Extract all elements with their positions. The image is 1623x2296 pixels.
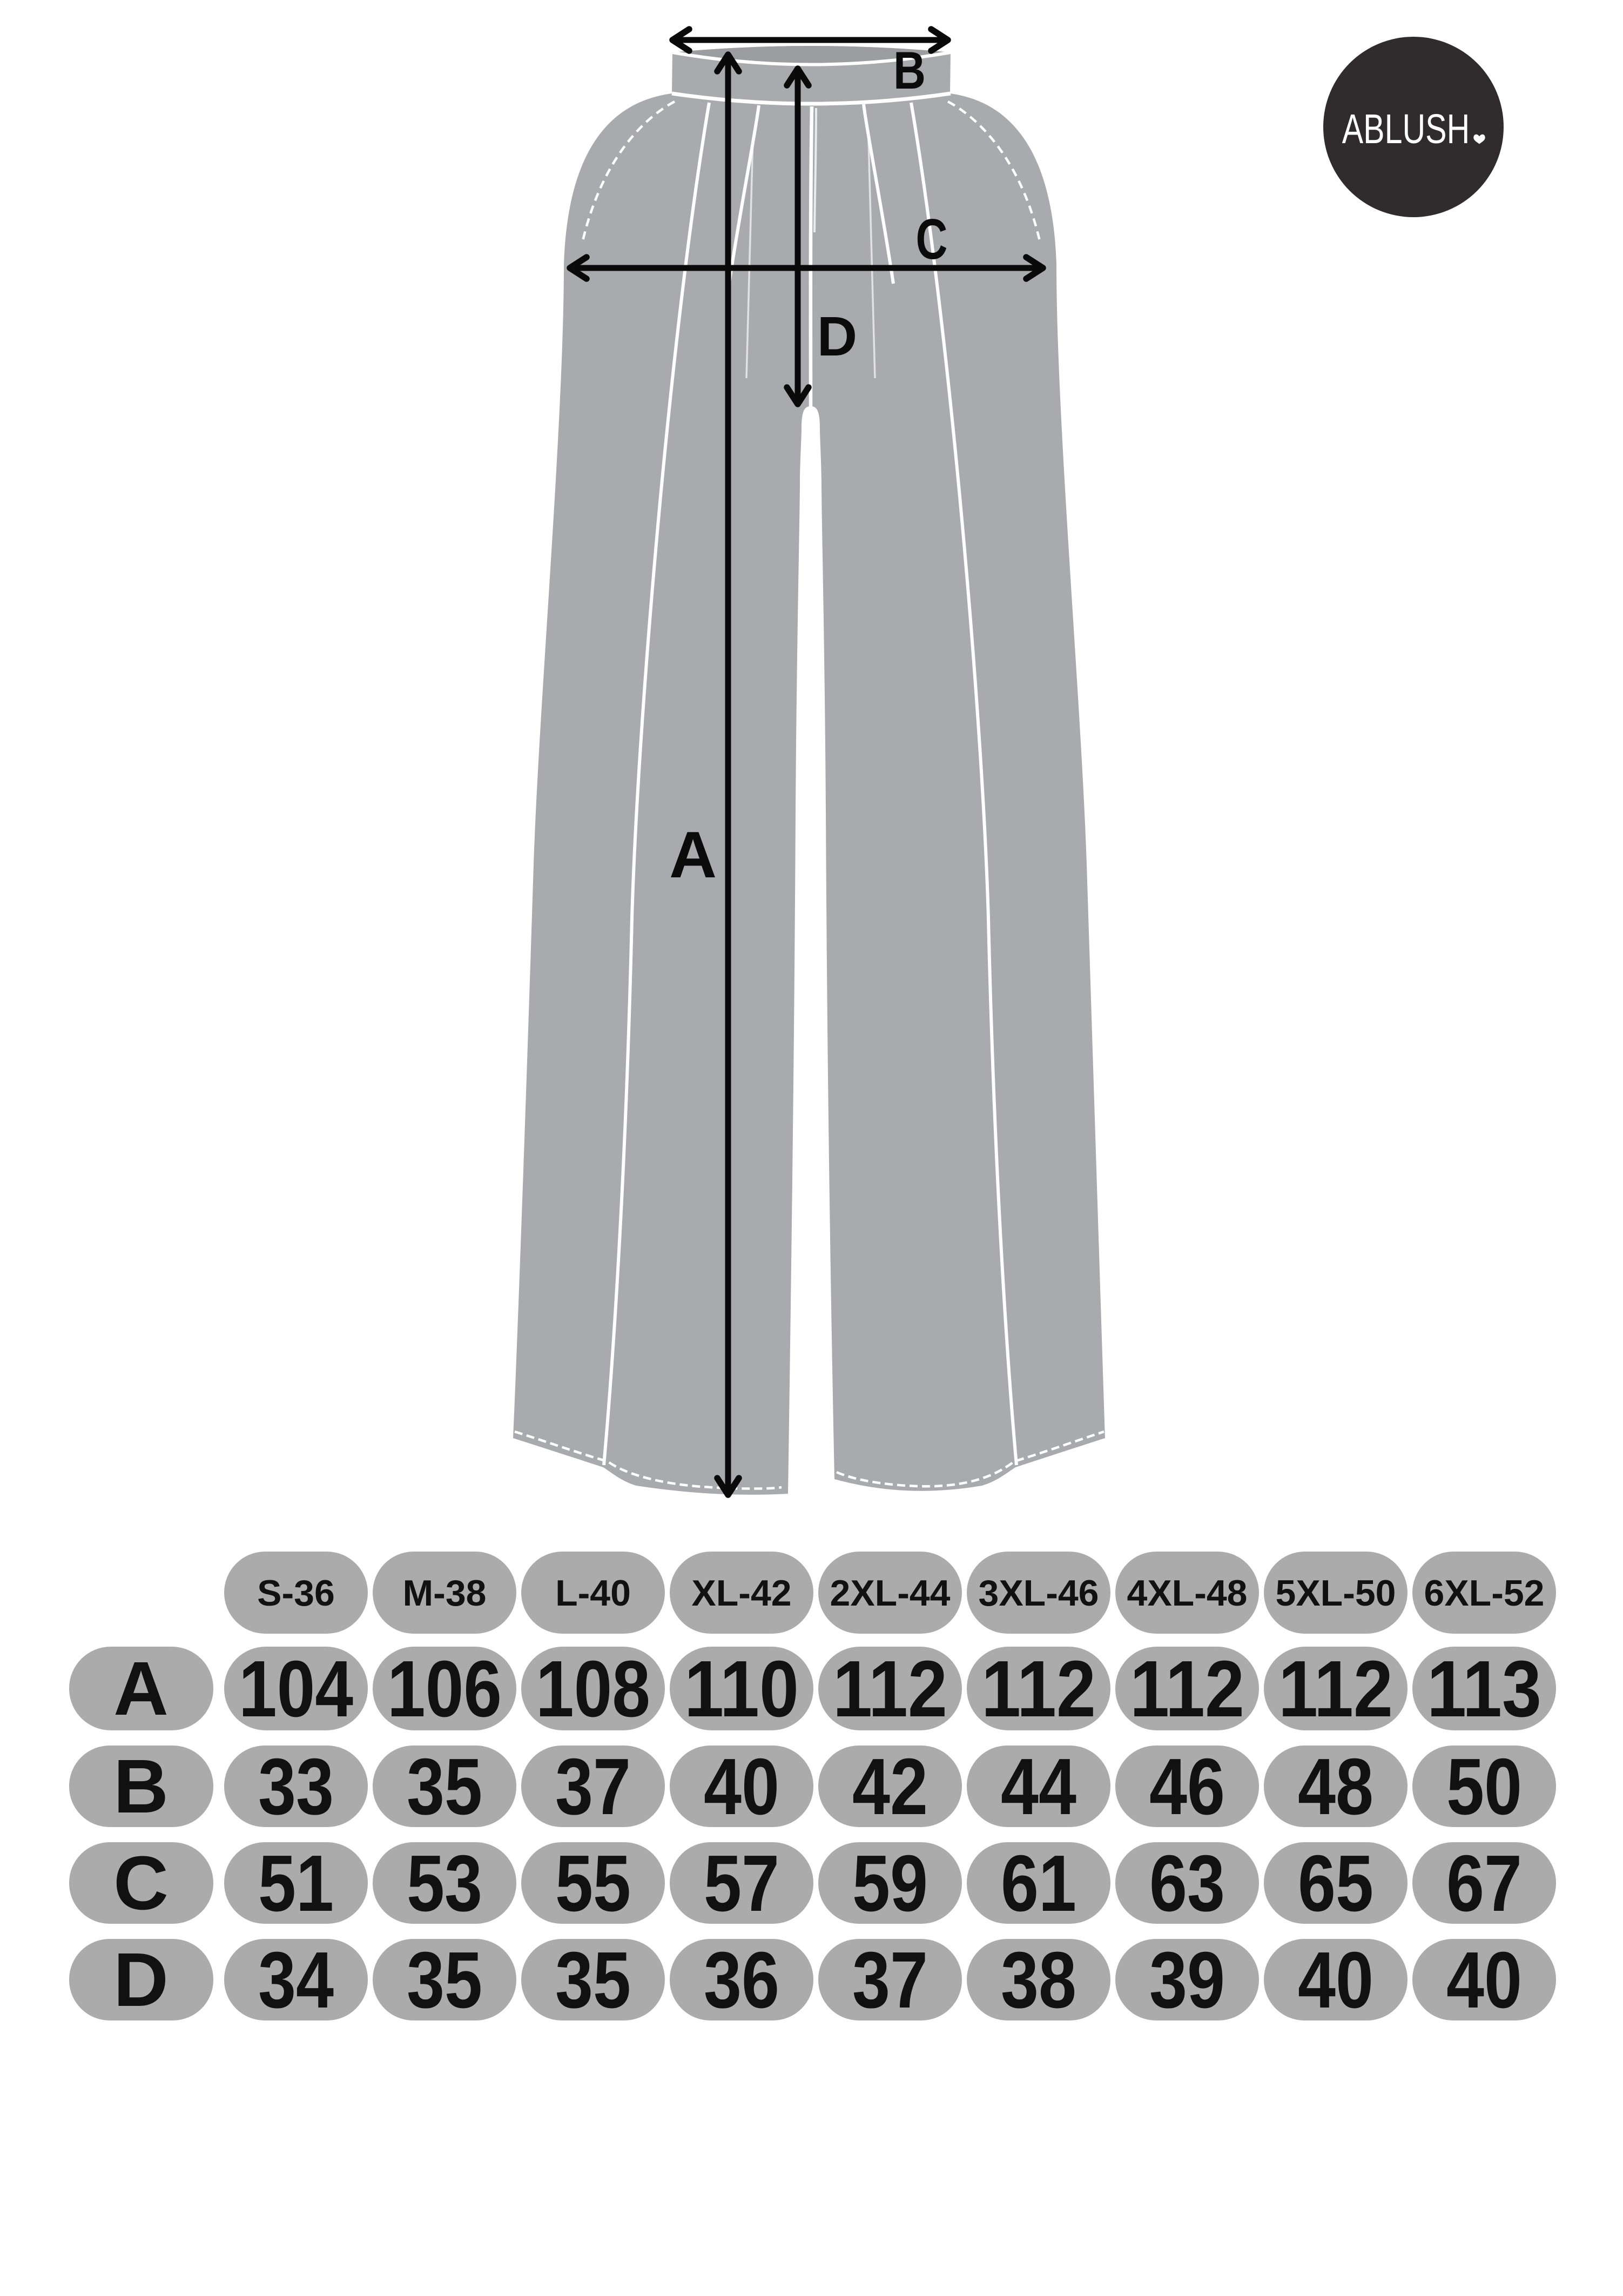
svg-text:35: 35 — [407, 1936, 482, 2025]
svg-text:34: 34 — [258, 1936, 334, 2025]
svg-text:B: B — [893, 41, 926, 100]
svg-text:38: 38 — [1001, 1936, 1076, 2025]
svg-text:L-40: L-40 — [555, 1573, 631, 1614]
svg-text:2XL-44: 2XL-44 — [830, 1573, 951, 1614]
svg-text:63: 63 — [1149, 1839, 1225, 1928]
svg-text:51: 51 — [258, 1839, 334, 1928]
svg-text:ABLUSH: ABLUSH — [1342, 105, 1470, 152]
svg-text:37: 37 — [555, 1742, 631, 1831]
svg-text:61: 61 — [1001, 1839, 1076, 1928]
svg-text:55: 55 — [555, 1839, 631, 1928]
svg-text:40: 40 — [704, 1742, 779, 1831]
svg-text:108: 108 — [536, 1644, 650, 1734]
svg-text:36: 36 — [704, 1936, 779, 2025]
svg-text:48: 48 — [1298, 1742, 1373, 1831]
svg-text:57: 57 — [704, 1839, 779, 1928]
svg-text:35: 35 — [407, 1742, 482, 1831]
svg-text:112: 112 — [981, 1644, 1096, 1734]
svg-text:42: 42 — [852, 1742, 928, 1831]
svg-text:59: 59 — [852, 1839, 928, 1928]
svg-text:104: 104 — [239, 1644, 353, 1734]
svg-text:4XL-48: 4XL-48 — [1127, 1573, 1248, 1614]
svg-text:6XL-52: 6XL-52 — [1424, 1573, 1545, 1614]
svg-text:D: D — [817, 305, 857, 367]
svg-text:3XL-46: 3XL-46 — [979, 1573, 1099, 1614]
svg-text:M-38: M-38 — [403, 1573, 487, 1614]
svg-text:A: A — [669, 818, 717, 891]
svg-text:65: 65 — [1298, 1839, 1373, 1928]
svg-text:C: C — [916, 207, 948, 271]
svg-text:40: 40 — [1298, 1936, 1373, 2025]
svg-text:112: 112 — [1130, 1644, 1244, 1734]
svg-text:113: 113 — [1427, 1644, 1541, 1734]
svg-text:39: 39 — [1149, 1936, 1225, 2025]
svg-text:D: D — [113, 1937, 169, 2022]
svg-text:50: 50 — [1446, 1742, 1522, 1831]
svg-text:40: 40 — [1446, 1936, 1522, 2025]
svg-text:106: 106 — [387, 1644, 502, 1734]
svg-text:33: 33 — [258, 1742, 334, 1831]
svg-text:37: 37 — [852, 1936, 928, 2025]
svg-text:112: 112 — [833, 1644, 947, 1734]
svg-text:B: B — [113, 1743, 169, 1829]
svg-text:67: 67 — [1446, 1839, 1522, 1928]
svg-text:110: 110 — [684, 1644, 799, 1734]
svg-text:46: 46 — [1149, 1742, 1225, 1831]
svg-text:A: A — [113, 1646, 169, 1731]
svg-text:35: 35 — [555, 1936, 631, 2025]
svg-text:C: C — [113, 1840, 169, 1925]
svg-text:53: 53 — [407, 1839, 482, 1928]
svg-text:44: 44 — [1001, 1742, 1076, 1831]
svg-text:112: 112 — [1278, 1644, 1393, 1734]
svg-text:S-36: S-36 — [257, 1573, 335, 1614]
svg-text:XL-42: XL-42 — [691, 1573, 791, 1614]
svg-text:5XL-50: 5XL-50 — [1276, 1573, 1396, 1614]
